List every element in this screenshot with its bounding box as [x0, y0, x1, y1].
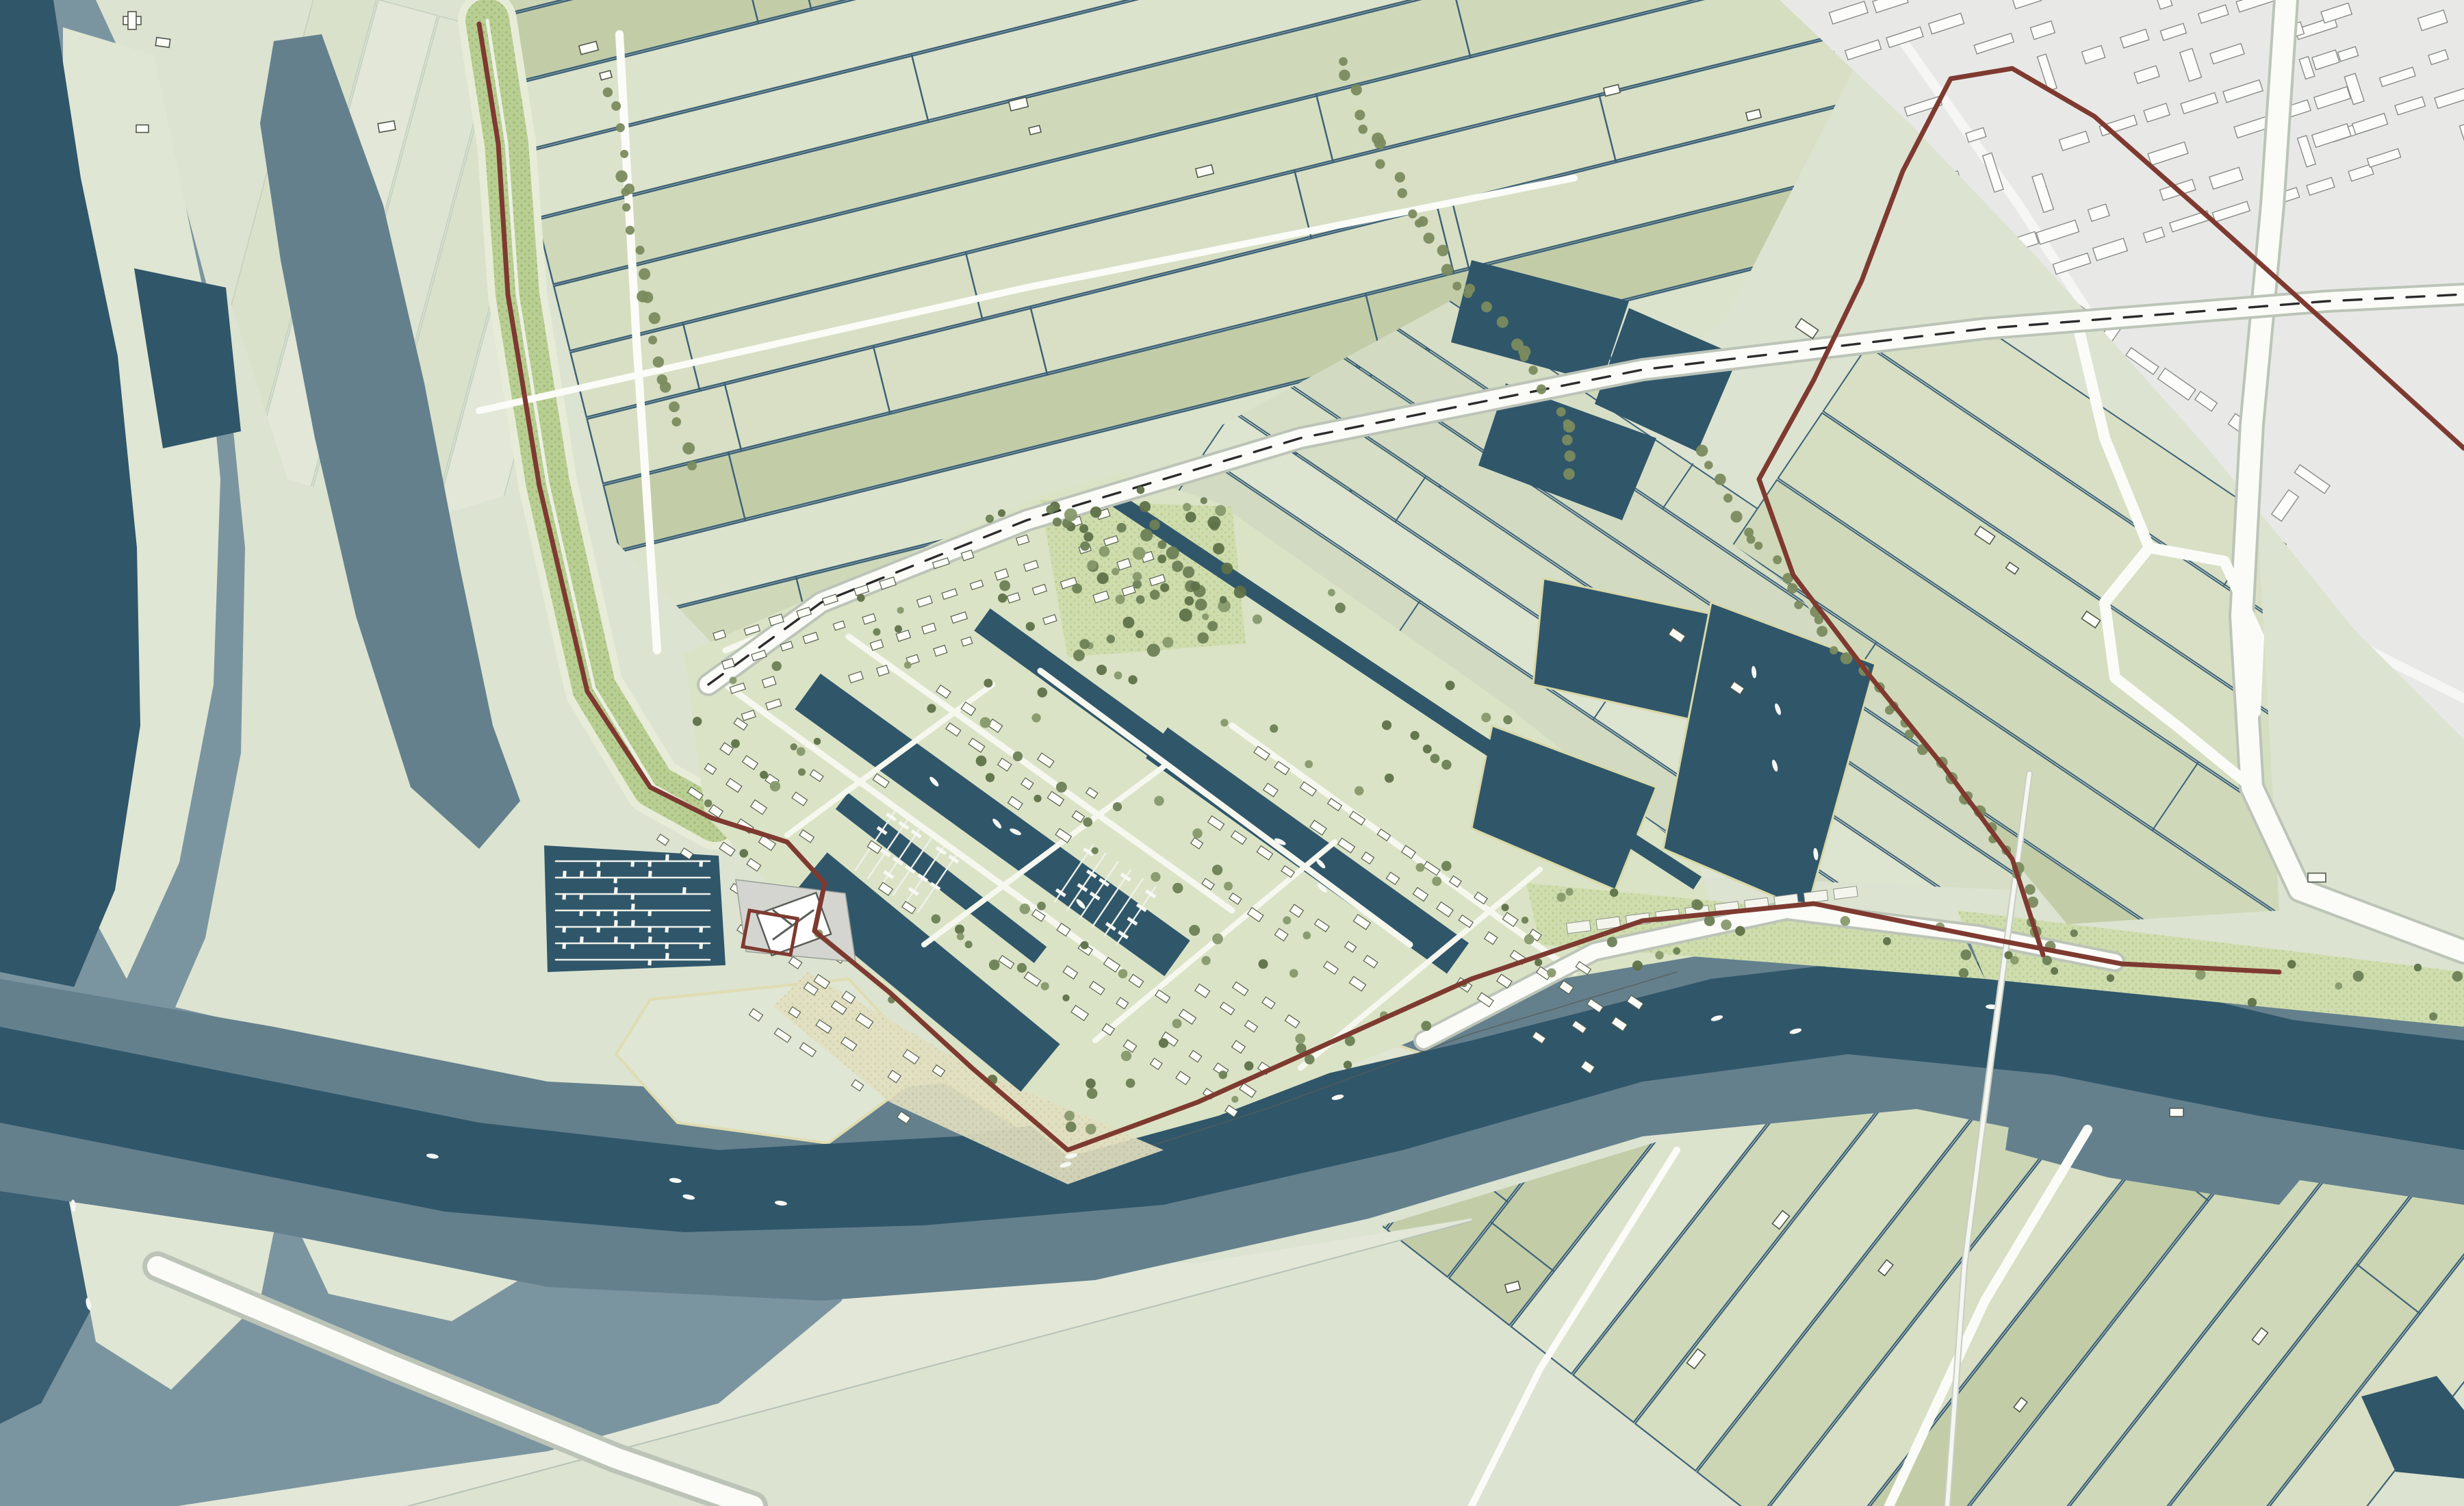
masterplan-map: [0, 0, 2464, 1506]
map-canvas: [0, 0, 2464, 1506]
